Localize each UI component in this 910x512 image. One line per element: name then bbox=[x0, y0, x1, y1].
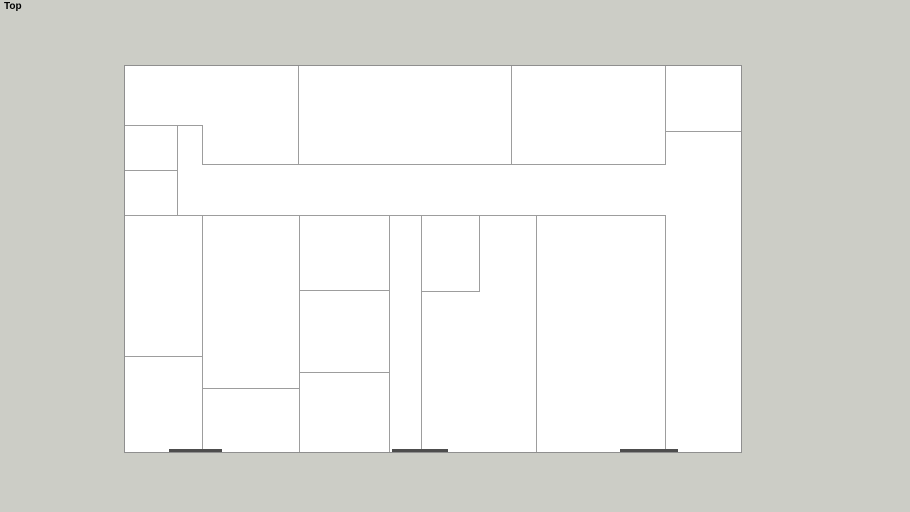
wall-segment bbox=[125, 215, 666, 216]
wall-segment bbox=[389, 215, 390, 452]
wall-segment bbox=[421, 215, 422, 452]
thick-edge-segment bbox=[620, 449, 678, 452]
wall-segment bbox=[479, 215, 480, 291]
wall-segment bbox=[665, 215, 666, 452]
view-label: Top bbox=[4, 1, 22, 12]
wall-segment bbox=[511, 66, 512, 164]
wall-segment bbox=[421, 291, 480, 292]
viewport-canvas[interactable]: Top bbox=[0, 0, 910, 512]
wall-segment bbox=[125, 356, 203, 357]
wall-segment bbox=[202, 164, 666, 165]
thick-edge-segment bbox=[392, 449, 448, 452]
wall-segment bbox=[125, 125, 202, 126]
floor-plan[interactable] bbox=[124, 65, 742, 453]
wall-segment bbox=[536, 215, 537, 452]
wall-segment bbox=[125, 170, 178, 171]
wall-segment bbox=[665, 66, 666, 164]
wall-segment bbox=[202, 388, 300, 389]
wall-segment bbox=[298, 66, 299, 164]
wall-segment bbox=[202, 125, 203, 165]
wall-segment bbox=[299, 215, 300, 452]
thick-edge-segment bbox=[169, 449, 222, 452]
wall-segment bbox=[299, 290, 390, 291]
wall-segment bbox=[665, 131, 741, 132]
wall-segment bbox=[202, 215, 203, 452]
wall-segment bbox=[299, 372, 390, 373]
